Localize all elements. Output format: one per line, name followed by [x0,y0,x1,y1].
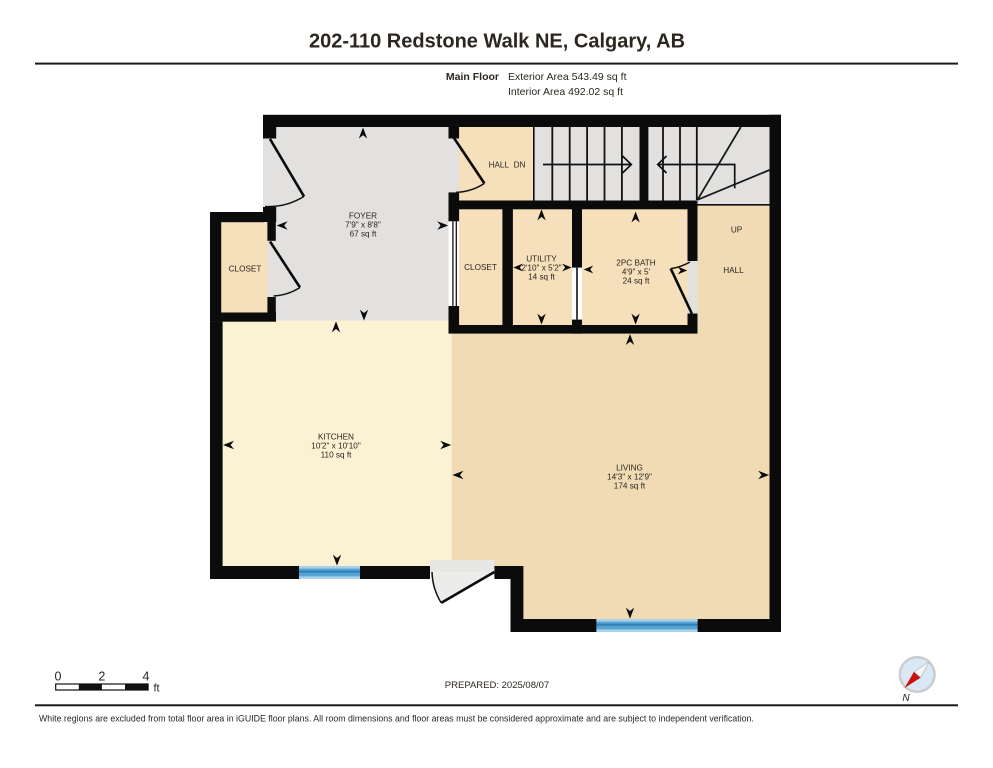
svg-text:LIVING: LIVING [616,464,643,473]
svg-text:110 sq ft: 110 sq ft [321,451,353,460]
svg-text:CLOSET: CLOSET [464,263,497,272]
svg-text:14'3" x 12'9": 14'3" x 12'9" [607,473,652,482]
svg-text:UP: UP [731,226,743,235]
svg-text:4: 4 [143,670,150,684]
svg-text:10'2" x 10'10": 10'2" x 10'10" [311,442,361,451]
svg-text:14 sq ft: 14 sq ft [528,273,556,282]
svg-text:KITCHEN: KITCHEN [318,433,354,442]
svg-text:24 sq ft: 24 sq ft [623,277,651,286]
svg-text:Interior Area 492.02 sq ft: Interior Area 492.02 sq ft [508,86,623,98]
svg-text:FOYER: FOYER [349,212,377,221]
svg-text:CLOSET: CLOSET [229,265,262,274]
svg-text:Exterior Area 543.49 sq ft: Exterior Area 543.49 sq ft [508,71,627,83]
svg-text:PREPARED: 2025/08/07: PREPARED: 2025/08/07 [445,680,549,691]
svg-text:7'9" x 8'8": 7'9" x 8'8" [345,221,381,230]
svg-text:N: N [902,693,910,704]
svg-text:4'9" x 5': 4'9" x 5' [622,268,651,277]
svg-text:2PC BATH: 2PC BATH [616,259,656,268]
svg-text:White regions are excluded fro: White regions are excluded from total fl… [39,714,754,724]
svg-text:0: 0 [55,670,62,684]
svg-text:HALL: HALL [723,266,744,275]
svg-text:2: 2 [98,670,105,684]
svg-text:ft: ft [154,683,160,695]
svg-text:UTILITY: UTILITY [526,255,557,264]
svg-text:174 sq ft: 174 sq ft [614,482,646,491]
svg-text:HALL DN: HALL DN [489,161,526,170]
svg-text:202-110 Redstone Walk NE, Calg: 202-110 Redstone Walk NE, Calgary, AB [309,31,685,53]
svg-text:67 sq ft: 67 sq ft [350,230,378,239]
svg-text:2'10" x 5'2": 2'10" x 5'2" [521,264,561,273]
svg-text:Main Floor: Main Floor [446,71,499,83]
